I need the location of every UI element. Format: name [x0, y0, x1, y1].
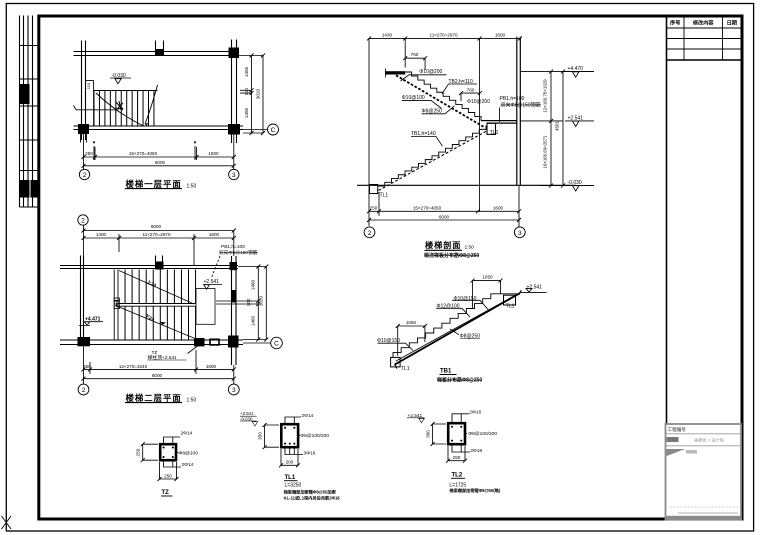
svg-text:250: 250	[136, 448, 141, 456]
svg-text:楼梯剖面: 楼梯剖面	[425, 240, 461, 250]
svg-text:序号: 序号	[670, 19, 680, 27]
svg-text:4501: 4501	[555, 121, 560, 131]
svg-text:KL-11或L1梁内另设吊筋2Φ18: KL-11或L1梁内另设吊筋2Φ18	[284, 494, 341, 501]
svg-text:福建省 × 设计院: 福建省 × 设计院	[694, 437, 725, 444]
svg-text:1460: 1460	[251, 315, 256, 326]
svg-text:+4.470: +4.470	[568, 66, 584, 72]
svg-text:Φ8@100/200: Φ8@100/200	[300, 433, 329, 439]
svg-text:15×270=4050: 15×270=4050	[413, 206, 442, 211]
svg-text:PB1,h=100: PB1,h=100	[221, 244, 245, 250]
svg-text:15×270=4050: 15×270=4050	[129, 151, 158, 156]
svg-text:12×270=3240: 12×270=3240	[119, 364, 148, 369]
svg-text:3: 3	[232, 172, 236, 179]
svg-text:6000: 6000	[155, 160, 166, 165]
svg-text:TL2: TL2	[452, 473, 463, 479]
svg-text:11×270=2970: 11×270=2970	[142, 232, 170, 237]
svg-text:1600: 1600	[495, 33, 506, 38]
svg-text:TL1: TL1	[401, 366, 410, 372]
svg-text:1600: 1600	[208, 151, 219, 156]
svg-text:1050: 1050	[406, 320, 417, 325]
svg-text:2Φ16: 2Φ16	[469, 409, 481, 415]
svg-text:Φ10@200: Φ10@200	[419, 69, 442, 75]
svg-text:PB1,h=100: PB1,h=100	[500, 96, 525, 102]
svg-text:250: 250	[164, 473, 172, 478]
svg-text:楼梯一层平面: 楼梯一层平面	[126, 179, 182, 189]
svg-text:760: 760	[411, 52, 419, 57]
svg-text:1600: 1600	[493, 206, 504, 211]
svg-text:Φ12@100: Φ12@100	[437, 304, 460, 310]
svg-text:250: 250	[453, 455, 461, 460]
svg-text:3Φ16: 3Φ16	[304, 451, 316, 457]
svg-text:250: 250	[83, 364, 91, 369]
svg-text:梯梁端部加密箍Φ8@50(略): 梯梁端部加密箍Φ8@50(略)	[449, 487, 500, 494]
svg-text:12×160.75=1929: 12×160.75=1929	[543, 79, 548, 113]
svg-text:6000: 6000	[439, 214, 450, 219]
svg-text:110: 110	[244, 88, 249, 96]
svg-text:双向Φ8@150钢筋: 双向Φ8@150钢筋	[501, 101, 541, 108]
svg-text:100: 100	[246, 298, 251, 306]
svg-text:2: 2	[82, 387, 86, 394]
svg-text:1600: 1600	[209, 232, 220, 237]
svg-text:2Φ14: 2Φ14	[182, 462, 194, 468]
svg-text:350: 350	[426, 430, 431, 438]
svg-text:日期: 日期	[727, 19, 737, 27]
svg-text:16×160.69=2571: 16×160.69=2571	[543, 135, 548, 169]
svg-text:250: 250	[85, 151, 93, 156]
svg-text:TL1: TL1	[285, 475, 296, 481]
svg-text:2: 2	[83, 172, 87, 179]
svg-text:-0.030: -0.030	[240, 416, 253, 421]
svg-text:200: 200	[286, 460, 294, 465]
svg-text:C: C	[271, 127, 276, 134]
svg-text:11×270=2970: 11×270=2970	[429, 33, 457, 38]
svg-text:3020: 3020	[256, 88, 261, 99]
svg-text:2Φ14: 2Φ14	[302, 413, 314, 419]
svg-text:1460: 1460	[251, 279, 256, 290]
svg-text:3: 3	[518, 230, 522, 237]
svg-text:Φ10@150: Φ10@150	[454, 296, 477, 302]
svg-text:1:50: 1:50	[187, 397, 197, 403]
svg-text:1:50: 1:50	[465, 244, 475, 250]
svg-text:C: C	[274, 341, 279, 348]
svg-text:350: 350	[258, 432, 263, 440]
svg-text:Φ10@200: Φ10@200	[467, 99, 490, 105]
svg-text:TL1: TL1	[506, 303, 515, 309]
svg-text:2Φ16: 2Φ16	[470, 448, 482, 454]
svg-text:+2.541: +2.541	[407, 413, 422, 419]
svg-text:Φ8@250: Φ8@250	[460, 334, 480, 340]
svg-text:1600: 1600	[206, 364, 217, 369]
svg-text:1:50: 1:50	[187, 183, 197, 189]
svg-text:110: 110	[86, 82, 91, 89]
svg-text:3020: 3020	[258, 295, 263, 306]
svg-text:760: 760	[467, 87, 475, 92]
svg-text:1455: 1455	[244, 66, 249, 77]
svg-text:+2.541: +2.541	[527, 284, 543, 290]
svg-text:双向Φ8@150钢筋: 双向Φ8@150钢筋	[219, 249, 258, 256]
svg-text:2: 2	[368, 230, 372, 237]
svg-text:6000: 6000	[151, 224, 162, 229]
svg-text:现浇梯板分布筋Φ8@250: 现浇梯板分布筋Φ8@250	[424, 252, 479, 259]
svg-text:Φ8@100/200: Φ8@100/200	[468, 431, 497, 437]
svg-text:2Φ14: 2Φ14	[181, 431, 193, 437]
svg-text:梯板分布筋Φ8@250: 梯板分布筋Φ8@250	[437, 377, 482, 384]
svg-text:250: 250	[370, 206, 378, 211]
svg-text:TB1: TB1	[440, 369, 452, 375]
svg-text:TZ: TZ	[162, 490, 170, 496]
svg-text:修改内容: 修改内容	[692, 19, 715, 27]
svg-text:1455: 1455	[244, 107, 249, 118]
svg-text:TL1: TL1	[490, 130, 499, 136]
svg-text:Φ8@100: Φ8@100	[179, 451, 199, 457]
svg-text:L=3250: L=3250	[285, 482, 302, 488]
svg-text:1050: 1050	[482, 275, 493, 280]
svg-text:1400: 1400	[96, 232, 107, 237]
svg-text:3: 3	[232, 387, 236, 394]
svg-text:6000: 6000	[152, 373, 163, 378]
svg-text:2: 2	[81, 218, 85, 225]
svg-text:TL1: TL1	[380, 193, 389, 199]
svg-text:Φ10@150: Φ10@150	[377, 338, 400, 344]
svg-text:工程编号: 工程编号	[668, 426, 687, 433]
svg-text:1430: 1430	[382, 33, 393, 38]
svg-text:楼梯二层平面: 楼梯二层平面	[126, 393, 182, 403]
